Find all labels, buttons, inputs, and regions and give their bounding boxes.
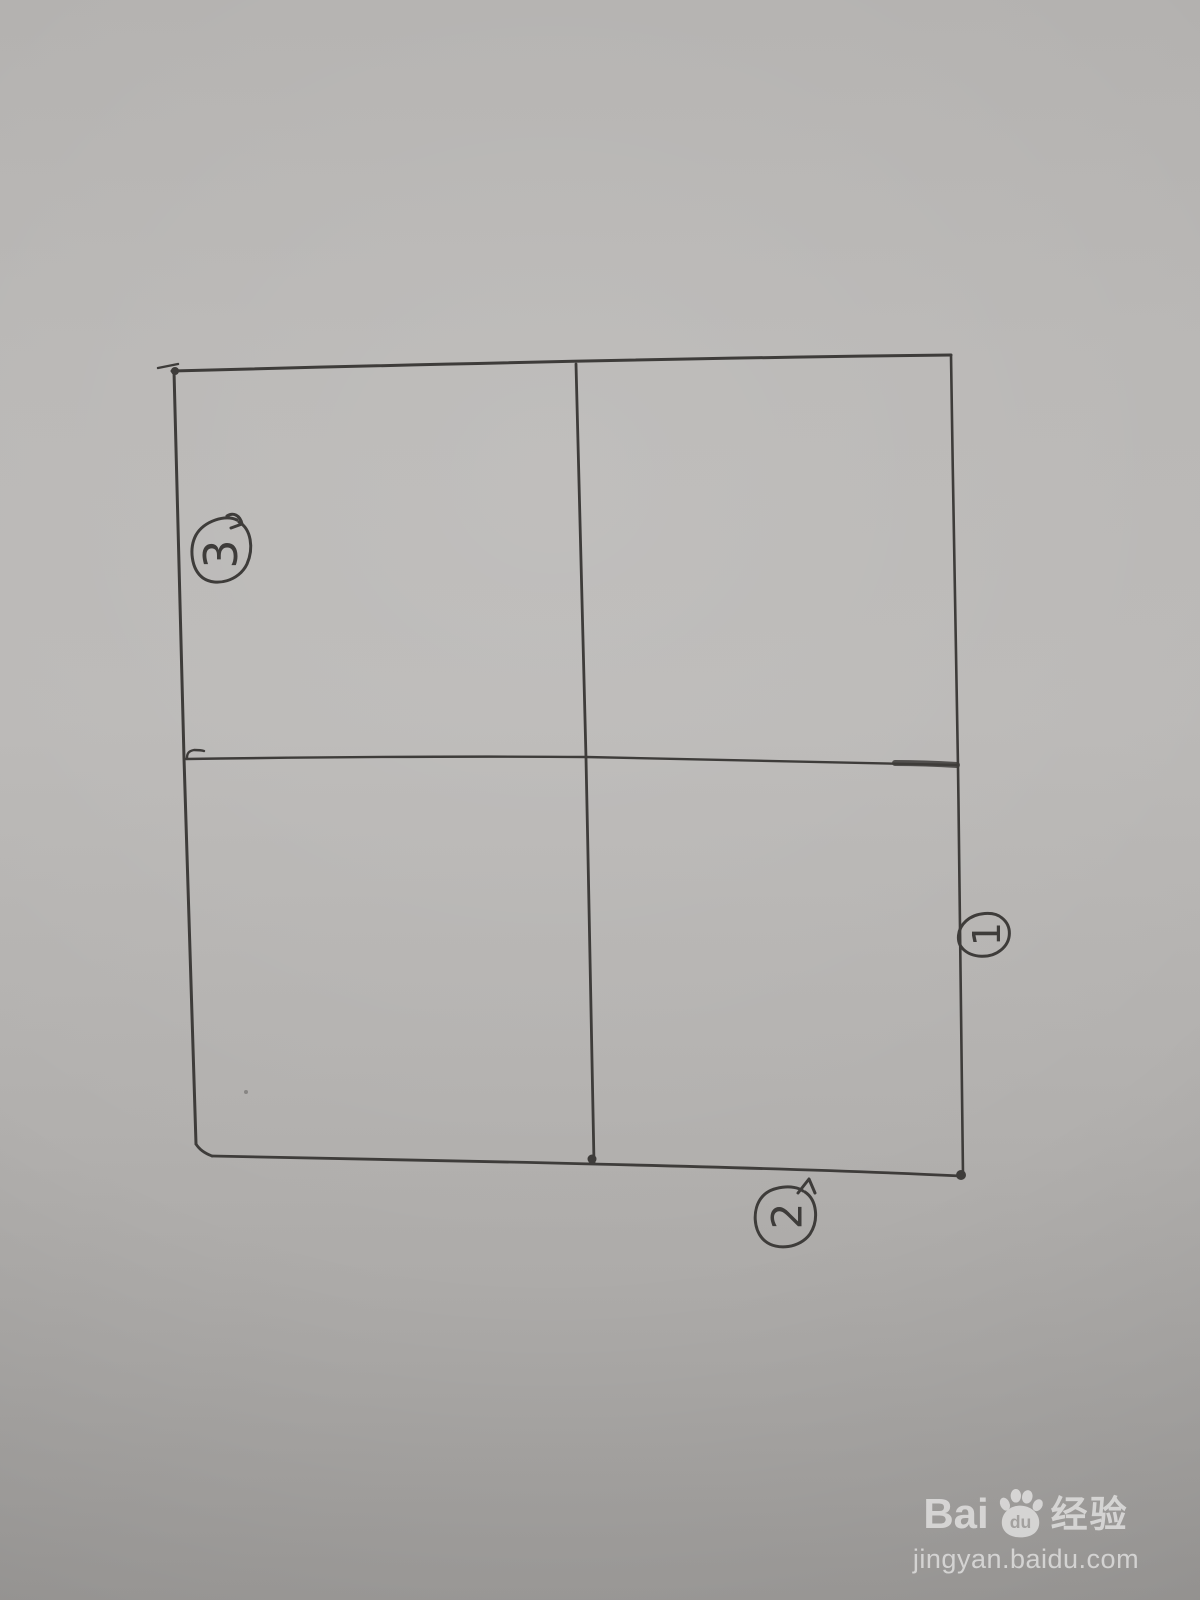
ink-blob-bottom-center [588,1155,597,1164]
watermark-url: jingyan.baidu.com [910,1546,1142,1573]
square-top-edge [172,355,951,371]
horizontal-fold-line [186,757,958,765]
circled-label-1: 1 [965,922,1009,946]
ink-blob-top-left [171,367,179,375]
photo-of-paper-sketch: 3 1 2 Bai du 经验 jingyan.bai [0,0,1200,1600]
square-left-edge [174,371,196,1144]
circled-label-3: 3 [194,539,248,568]
baidu-logo-bai-text: Bai [923,1493,988,1535]
horizontal-fold-overlap-stroke [895,763,957,765]
horizontal-fold-start-hook [187,750,204,758]
circle-2-arrow-tip [798,1179,815,1193]
bottom-left-chamfer [196,1144,212,1156]
paper-speck [244,1090,248,1094]
ink-blob-bottom-right [956,1170,966,1180]
baidu-logo-jingyan-text: 经验 [1051,1496,1129,1533]
baidu-watermark: Bai du 经验 jingyan.baidu.com [910,1488,1142,1573]
circled-label-2: 2 [763,1203,812,1230]
baidu-logo-du-text: du [1009,1512,1031,1532]
baidu-paw-icon: du [994,1488,1046,1540]
circle-3-arrow-tip [227,514,242,528]
baidu-logo: Bai du 经验 [910,1488,1142,1540]
sketch-svg: 3 1 2 [0,0,1200,1600]
square-bottom-edge [212,1156,961,1176]
vertical-fold-line [576,364,594,1163]
